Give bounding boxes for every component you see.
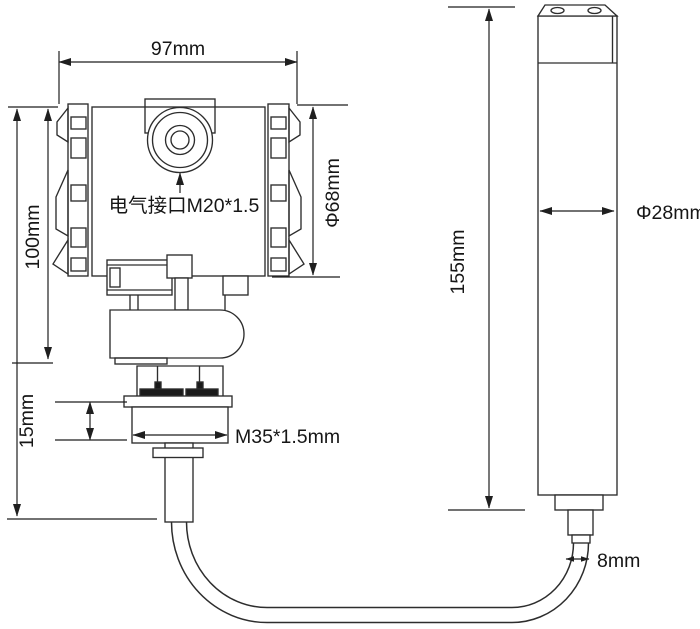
label-head-diameter: Φ68mm	[322, 158, 344, 228]
process-connection	[107, 255, 248, 522]
flange-plate	[124, 396, 232, 407]
gland-collar	[153, 448, 203, 458]
cable	[179, 515, 581, 615]
label-thread-spec: M35*1.5mm	[235, 426, 340, 448]
left-end-cap	[53, 104, 88, 276]
probe-neck	[568, 510, 593, 535]
electrical-entry-outer	[148, 108, 213, 173]
dim-thread-height	[55, 402, 127, 440]
label-electrical-interface: 电气接口M20*1.5	[109, 195, 260, 217]
dimension-drawing: 97mm 100mm 电气接口M20*1.5 Φ68mm 15mm M35*1.…	[0, 0, 700, 629]
oval-housing	[110, 310, 244, 358]
label-probe-diameter: Φ28mm	[636, 202, 700, 224]
probe-collar	[555, 495, 603, 510]
transmitter-head	[53, 99, 304, 276]
label-cable-diameter: 8mm	[597, 550, 640, 572]
drawing-canvas: 97mm 100mm 电气接口M20*1.5 Φ68mm 15mm M35*1.…	[0, 0, 700, 629]
dimension-lines	[7, 7, 614, 559]
right-end-cap	[268, 104, 304, 276]
label-thread-height: 15mm	[16, 394, 38, 448]
label-head-width: 97mm	[151, 38, 205, 60]
label-probe-length: 155mm	[447, 229, 469, 294]
clamp-section	[137, 366, 223, 396]
probe-top-face	[538, 5, 617, 16]
probe	[538, 5, 617, 543]
probe-body	[538, 16, 617, 495]
thread-cylinder	[132, 407, 228, 443]
probe-cable-tip	[572, 535, 590, 543]
label-head-height: 100mm	[22, 204, 44, 269]
